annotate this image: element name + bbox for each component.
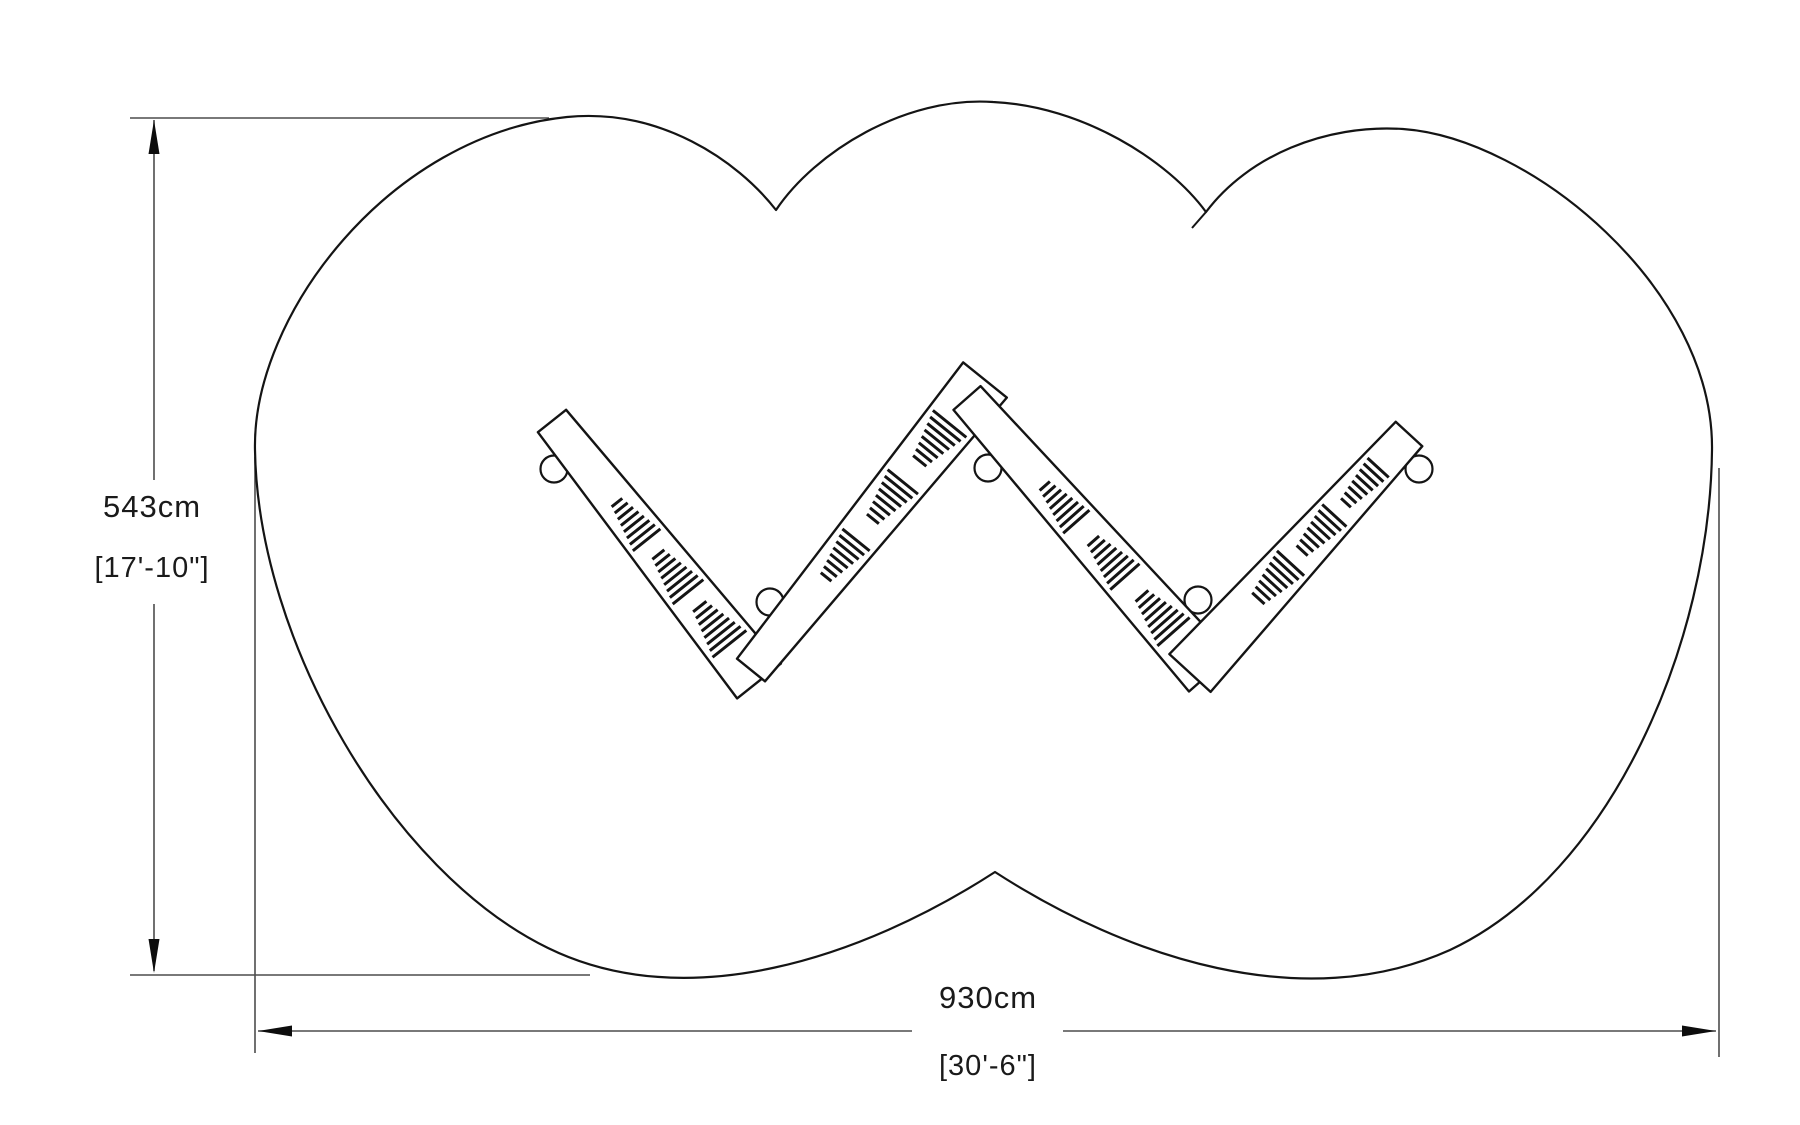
technical-drawing-canvas: 543cm [17'-10"] 930cm [30'-6"]: [0, 0, 1800, 1125]
dimension-arrow-down: [149, 939, 160, 973]
plan-outline-and-structure: [255, 102, 1712, 979]
dimension-arrow-up: [149, 120, 160, 154]
lobe-overlap-tail: [1192, 212, 1206, 228]
dimension-arrow-left: [258, 1026, 292, 1037]
vertical-dim-metric-label: 543cm: [103, 489, 201, 524]
balance-beam-4: [1169, 422, 1422, 692]
dimension-arrow-right: [1682, 1026, 1716, 1037]
vertical-dim-imperial-label: [17'-10"]: [94, 552, 209, 584]
drawing-page: 543cm [17'-10"] 930cm [30'-6"]: [0, 0, 1800, 1125]
dimension-graphics: [130, 118, 1719, 1057]
border-outline-path: [255, 102, 1712, 979]
horizontal-dim-metric-label: 930cm: [939, 980, 1037, 1015]
horizontal-dim-imperial-label: [30'-6"]: [939, 1050, 1037, 1082]
